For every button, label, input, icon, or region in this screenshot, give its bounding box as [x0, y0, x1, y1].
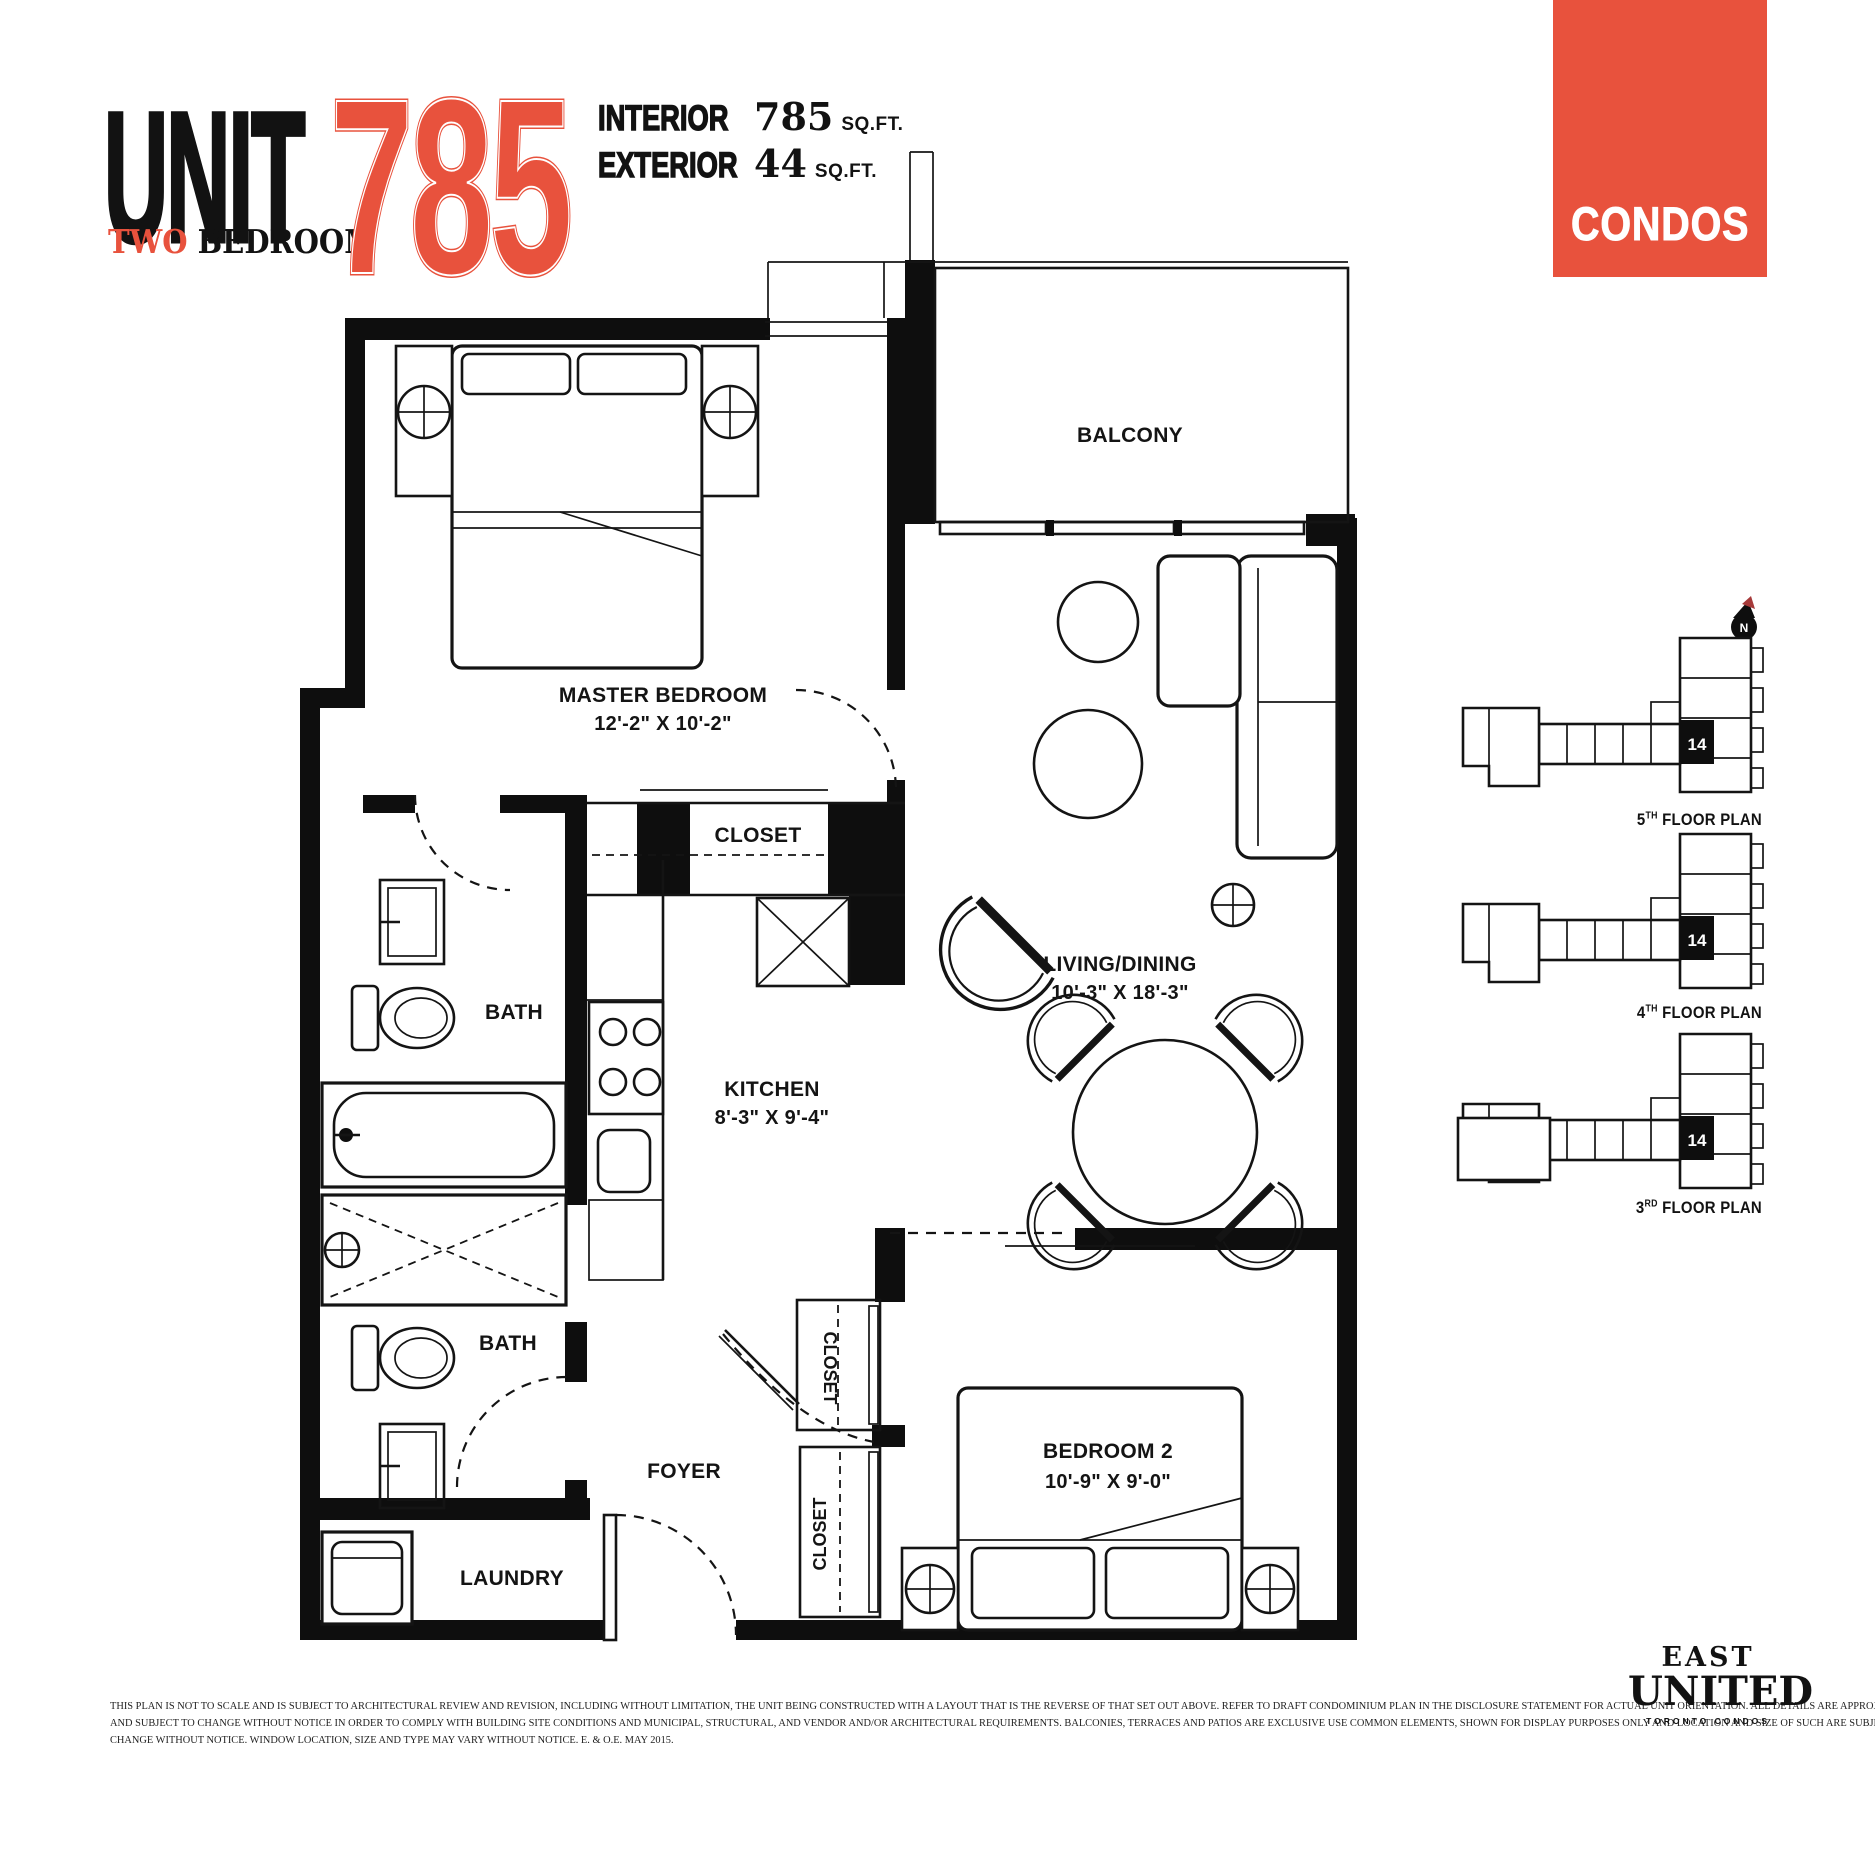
- north-arrow-icon: N: [1731, 596, 1757, 640]
- condos-badge: CONDOS: [1553, 0, 1767, 277]
- interior-label: INTERIOR: [598, 99, 717, 139]
- kitchen-area: [587, 860, 849, 1280]
- bedroom2-label: BEDROOM 2: [1043, 1440, 1173, 1463]
- keyplan-5th: 14: [1463, 638, 1763, 792]
- bath1-area: BATH: [322, 880, 566, 1305]
- caption-ord: RD: [1644, 1198, 1657, 1209]
- closet-master-label: CLOSET: [715, 824, 802, 847]
- floorplan-drawing: BALCONY MASTER BEDROOM 12'-2" X 10'-2" C…: [270, 140, 1390, 1660]
- keyplan-4th-unit: 14: [1688, 931, 1707, 950]
- master-door-arc: [796, 690, 896, 790]
- caption-num: 4: [1637, 1003, 1646, 1022]
- keyplan-5th-caption: 5TH FLOOR PLAN: [1586, 810, 1762, 830]
- keyplan-5th-unit: 14: [1688, 735, 1707, 754]
- caption-rest: FLOOR PLAN: [1658, 810, 1762, 829]
- bath1-label: BATH: [485, 1001, 543, 1024]
- condos-badge-label: CONDOS: [1571, 196, 1749, 251]
- hall-door-arc: [415, 795, 510, 890]
- logo-line-east: EAST: [1628, 1644, 1788, 1671]
- keyplan-3rd-caption: 3RD FLOOR PLAN: [1586, 1198, 1762, 1218]
- closet-hall-label: CLOSET: [820, 1331, 840, 1404]
- living-furniture: [916, 556, 1337, 1288]
- laundry-area: LAUNDRY: [322, 1532, 564, 1624]
- living-dining-dims: 10'-3" X 18'-3": [1051, 982, 1189, 1004]
- logo-line-united: UNITED: [1628, 1671, 1788, 1713]
- master-bedroom-label: MASTER BEDROOM: [559, 684, 767, 707]
- caption-rest: FLOOR PLAN: [1658, 1198, 1762, 1217]
- keyplan-drawings: N 14 14 14: [1440, 580, 1840, 1280]
- foyer-label: FOYER: [647, 1460, 721, 1483]
- interior-unit: SQ.FT.: [841, 114, 903, 136]
- closet-bed2-label: CLOSET: [810, 1497, 830, 1570]
- balcony-label: BALCONY: [1077, 424, 1183, 447]
- laundry-label: LAUNDRY: [460, 1567, 564, 1590]
- keyplan-4th: 14: [1463, 834, 1763, 988]
- caption-ord: TH: [1645, 1003, 1657, 1014]
- disclaimer-line: THIS PLAN IS NOT TO SCALE AND IS SUBJECT…: [110, 1698, 1541, 1715]
- master-bedroom-dims: 12'-2" X 10'-2": [594, 713, 732, 735]
- kitchen-label: KITCHEN: [724, 1078, 819, 1101]
- caption-rest: FLOOR PLAN: [1658, 1003, 1762, 1022]
- bedroom2-dims: 10'-9" X 9'-0": [1045, 1471, 1171, 1493]
- bath2-label: BATH: [479, 1332, 537, 1355]
- bedroom2-bed: [902, 1388, 1298, 1630]
- logo-line-toronto-condos: TORONTO CONDOS: [1628, 1716, 1788, 1726]
- interior-value: 785: [754, 94, 833, 139]
- caption-ord: TH: [1645, 810, 1657, 821]
- disclaimer-line: CHANGE WITHOUT NOTICE. WINDOW LOCATION, …: [110, 1732, 1541, 1749]
- master-bed: [396, 346, 758, 668]
- disclaimer-line: AND SUBJECT TO CHANGE WITHOUT NOTICE IN …: [110, 1715, 1541, 1732]
- keyplan-3rd-unit: 14: [1688, 1131, 1707, 1150]
- stat-row-interior: INTERIOR 785 SQ.FT.: [598, 94, 903, 141]
- north-label: N: [1740, 621, 1749, 635]
- dining-table: [1073, 1040, 1257, 1224]
- keyplan-3rd: 14: [1458, 1034, 1763, 1188]
- living-dining-label: LIVING/DINING: [1043, 953, 1196, 976]
- unit-subtitle-accent: TWO: [108, 222, 188, 261]
- caption-num: 5: [1637, 810, 1646, 829]
- keyplan-3rd-podium: [1458, 1118, 1550, 1180]
- keyplan-4th-caption: 4TH FLOOR PLAN: [1586, 1003, 1762, 1023]
- balcony-area: BALCONY: [765, 152, 1348, 536]
- disclaimer-text: THIS PLAN IS NOT TO SCALE AND IS SUBJECT…: [110, 1698, 1570, 1749]
- entry-door: [604, 1515, 736, 1640]
- east-united-logo: EAST UNITED TORONTO CONDOS: [1628, 1644, 1788, 1726]
- bath2-area: BATH: [352, 1326, 567, 1508]
- kitchen-dims: 8'-3" X 9'-4": [715, 1107, 830, 1129]
